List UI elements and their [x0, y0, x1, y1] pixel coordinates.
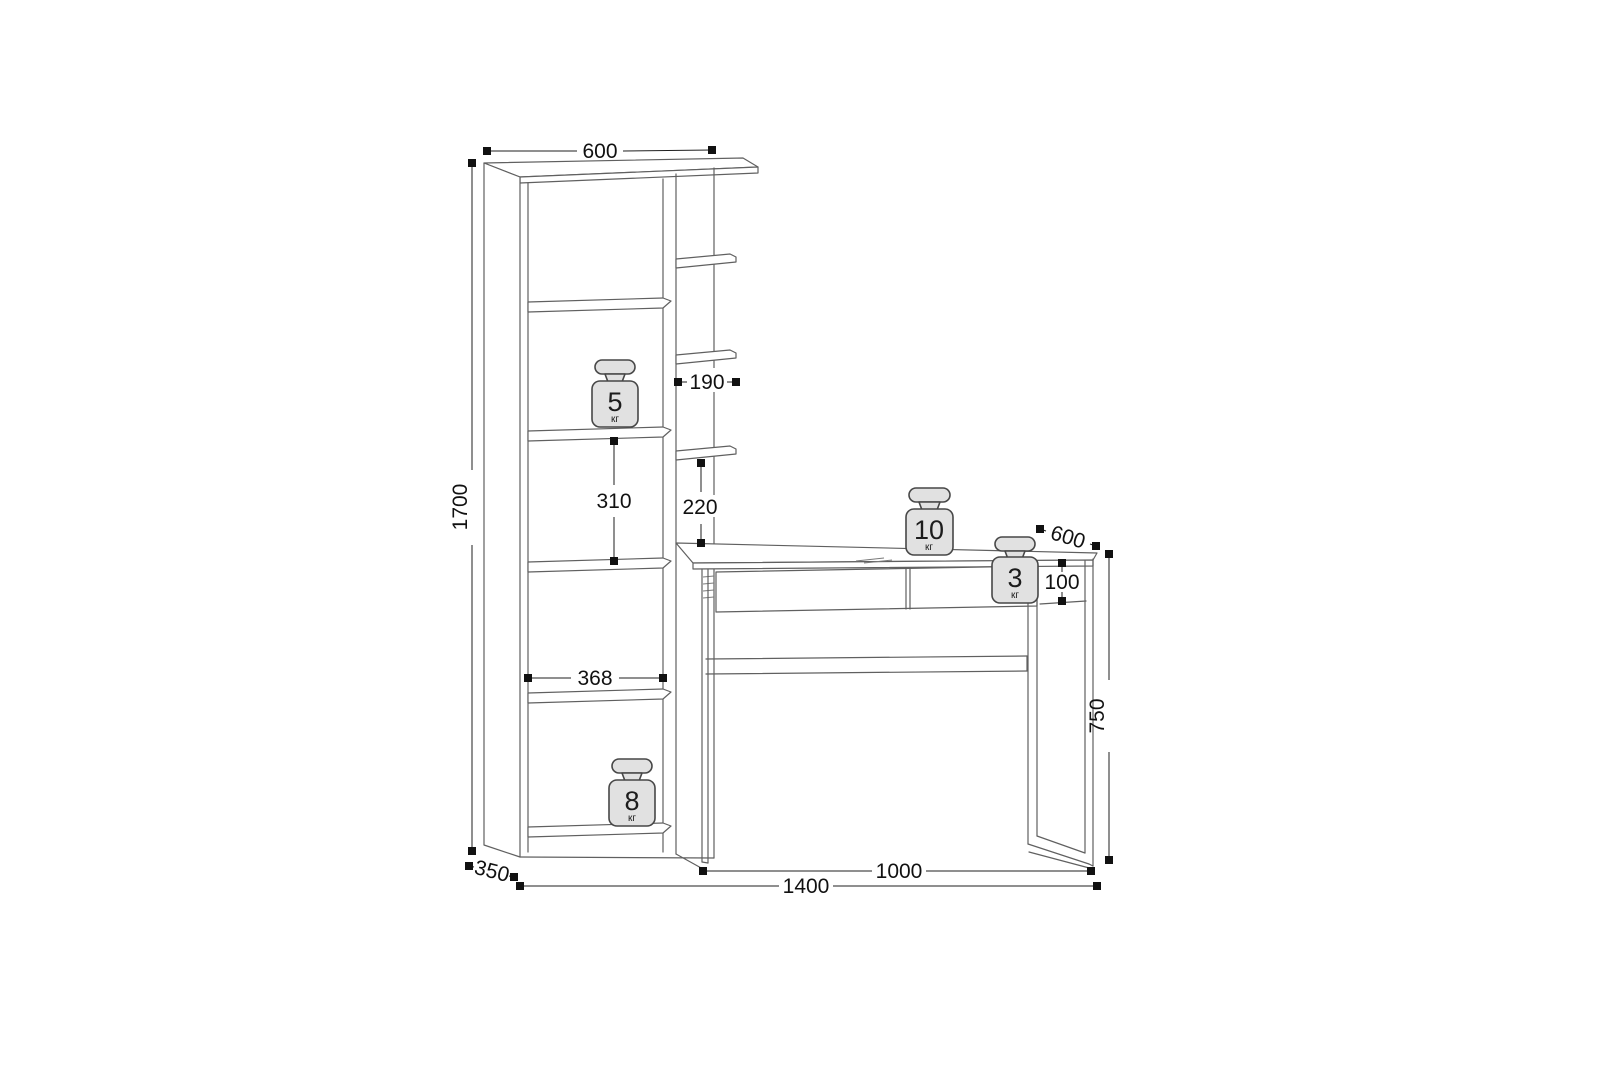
weight-3kg-unit: кг	[1011, 590, 1019, 601]
drawing-page: 5 кг 8 кг 10 кг 3 кг 600 1700	[0, 0, 1600, 1064]
dim-side-shelf-width: 190	[674, 368, 740, 394]
shelf-wide-4	[528, 689, 671, 703]
dim-drawer-height-label: 100	[1044, 571, 1079, 594]
dim-total-height: 1700	[449, 159, 476, 855]
furniture-dimension-drawing: 5 кг 8 кг 10 кг 3 кг 600 1700	[0, 0, 1600, 1064]
dim-desk-depth-label: 600	[1048, 521, 1088, 553]
weight-5kg-unit: кг	[611, 414, 619, 425]
weight-8kg-unit: кг	[628, 813, 636, 824]
weight-10kg-knob-icon	[909, 488, 950, 502]
shelf-wide-2	[528, 427, 671, 441]
bookshelf-floor-edge	[520, 857, 714, 858]
right-leg-foot-inner	[1037, 836, 1085, 853]
weight-8kg-value: 8	[624, 786, 639, 816]
shelf-small-3	[676, 446, 736, 460]
dim-inner-shelf-width: 368	[524, 667, 667, 690]
dim-total-width-label: 1400	[783, 875, 830, 898]
weight-10kg-unit: кг	[925, 542, 933, 553]
dim-inner-shelf-width-label: 368	[577, 667, 612, 690]
dim-desk-height: 750	[1086, 550, 1113, 864]
dim-shelf-depth-label: 350	[472, 856, 512, 887]
shelf-wide-3	[528, 558, 671, 572]
dim-desk-width: 1000	[699, 860, 1095, 883]
weight-5kg-value: 5	[607, 387, 622, 417]
weight-3kg: 3 кг	[992, 537, 1038, 603]
dim-desk-height-label: 750	[1086, 698, 1109, 733]
weight-3kg-knob-icon	[995, 537, 1035, 551]
dim-total-height-label: 1700	[449, 484, 472, 531]
desk-left-support-bottom	[702, 862, 708, 863]
shelf-wide-1	[528, 298, 671, 312]
desk-back-rail-top	[706, 656, 1027, 659]
desk-back-rail-bottom	[706, 671, 1027, 674]
weight-10kg-value: 10	[914, 515, 944, 545]
dim-total-width: 1400	[516, 875, 1101, 898]
dim-side-shelf-gap: 220	[681, 459, 719, 547]
weight-8kg-knob-icon	[612, 759, 652, 773]
weight-10kg: 10 кг	[906, 488, 953, 555]
weight-3kg-value: 3	[1007, 563, 1022, 593]
dim-desk-depth: 600	[1036, 521, 1100, 553]
weight-5kg: 5 кг	[592, 360, 638, 427]
dim-shelf-gap-label: 310	[596, 490, 631, 513]
dim-shelf-gap: 310	[596, 437, 631, 565]
dim-shelf-depth: 350	[465, 856, 518, 887]
bookshelf-base-foot-diagonal	[676, 854, 703, 869]
dim-desk-width-label: 1000	[876, 860, 923, 883]
dim-side-shelf-gap-label: 220	[682, 496, 717, 519]
bookshelf-left-panel	[484, 163, 520, 857]
weight-5kg-knob-icon	[595, 360, 635, 374]
drawer-front	[716, 566, 1037, 612]
shelf-small-1	[676, 254, 736, 268]
dim-side-shelf-width-label: 190	[689, 371, 724, 394]
dim-top-width-label: 600	[582, 140, 617, 163]
shelf-small-2	[676, 350, 736, 364]
weight-8kg: 8 кг	[609, 759, 655, 826]
